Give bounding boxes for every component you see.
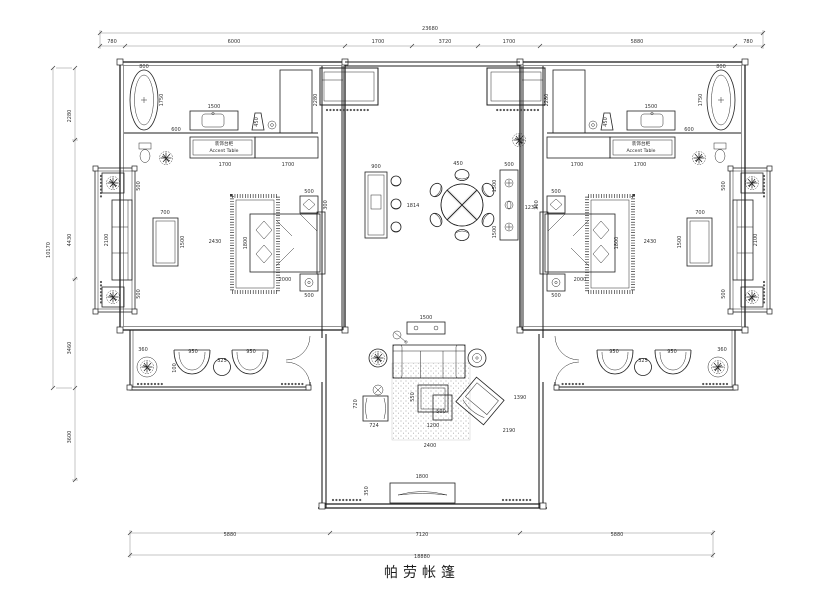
- bench: [363, 396, 388, 421]
- dimension-lines: [51, 30, 765, 558]
- balcony-bench: [112, 200, 132, 280]
- dimension-label: 1700: [219, 162, 232, 168]
- dimension-label: 2000: [574, 277, 587, 283]
- dimension-ticks: [51, 31, 765, 557]
- dimension-label: 500: [304, 293, 314, 299]
- dimension-label: 1700: [571, 162, 584, 168]
- dimension-label: 800: [139, 64, 149, 70]
- hall-console: [500, 170, 518, 240]
- dimension-label: 3460: [67, 342, 73, 355]
- balcony-planter-bottom: [102, 287, 124, 307]
- closet: [320, 68, 378, 105]
- dimension-label: 1234: [525, 205, 538, 211]
- dimension-label: 1500: [180, 236, 186, 249]
- dimension-label: 500: [551, 189, 561, 195]
- living-room: [318, 322, 547, 509]
- dimension-label: 950: [188, 349, 198, 355]
- dimension-label: 950: [667, 349, 677, 355]
- bar-stools: [391, 176, 401, 232]
- dimension-label: 1500: [492, 226, 498, 239]
- console-table: [407, 322, 445, 334]
- dimension-label: 2000: [279, 277, 292, 283]
- dimension-label: 10170: [46, 242, 52, 258]
- floorplan-sheet: 2368078060001700372017005880780588071205…: [0, 0, 837, 592]
- dimension-label: 500: [304, 189, 314, 195]
- radiator: [255, 137, 318, 158]
- dimension-label: 2280: [313, 94, 319, 107]
- dimension-label: 18880: [414, 554, 430, 560]
- dimension-label: 2100: [104, 234, 110, 247]
- dimension-label: 1814: [407, 203, 420, 209]
- dimension-label: 1500: [677, 236, 683, 249]
- dimension-label: 325: [217, 358, 227, 364]
- dimension-label: 1750: [698, 94, 704, 107]
- dimension-label: 500: [436, 409, 446, 415]
- dimension-label: 1500: [420, 315, 433, 321]
- dimension-label: 7120: [416, 532, 429, 538]
- dimension-label: 450: [453, 161, 463, 167]
- dimension-label: 2430: [209, 239, 222, 245]
- bathtub: [130, 70, 158, 130]
- dimension-label: 780: [107, 39, 117, 45]
- dimension-label: 350: [364, 486, 370, 496]
- dimension-label: 500: [551, 293, 561, 299]
- floor-drain: [268, 121, 276, 129]
- dimension-label: 2280: [544, 94, 550, 107]
- dimension-label: 1200: [427, 423, 440, 429]
- dimension-label: 550: [410, 392, 416, 402]
- dimension-label: 5880: [631, 39, 644, 45]
- dimension-label: 1500: [208, 104, 221, 110]
- vanity-counter: [190, 111, 238, 130]
- dimension-label: 1700: [634, 162, 647, 168]
- shower-area: [280, 70, 312, 133]
- nightstand-bottom: [300, 274, 318, 291]
- accent-table: [190, 137, 255, 158]
- dimension-label: 450: [603, 117, 609, 127]
- floorplan-canvas: 2368078060001700372017005880780588071205…: [0, 0, 837, 592]
- dimension-label: 1500: [492, 180, 498, 193]
- drawing-title: 帕劳帐篷: [384, 565, 460, 581]
- dimension-label: 2430: [644, 239, 657, 245]
- dimension-label: 500: [504, 162, 514, 168]
- dimension-label: 1700: [503, 39, 516, 45]
- annotation-layer: 2368078060001700372017005880780588071205…: [46, 26, 759, 560]
- dimension-label: 360: [717, 347, 727, 353]
- dimension-label: 450: [254, 117, 260, 127]
- balcony: [93, 166, 137, 314]
- dimension-label: 3600: [67, 431, 73, 444]
- dimension-label: 1500: [645, 104, 658, 110]
- central-hall: [345, 62, 526, 241]
- dimension-label: 3720: [439, 39, 452, 45]
- dimension-label: 1750: [159, 94, 165, 107]
- tv-console: [390, 483, 455, 503]
- dimension-label: 1800: [416, 474, 429, 480]
- dimension-label: 325: [638, 358, 648, 364]
- dimension-label: 23680: [422, 26, 438, 32]
- dimension-label: 6000: [228, 39, 241, 45]
- dimension-label: 600: [171, 127, 181, 133]
- dining-table: [441, 184, 483, 226]
- dimension-label: 724: [369, 423, 379, 429]
- dimension-label: 2190: [503, 428, 516, 434]
- dimension-label: 2100: [753, 234, 759, 247]
- dimension-label: 700: [160, 210, 170, 216]
- accent-table-label-en-left: Accent Table: [210, 148, 239, 154]
- dimension-label: 500: [136, 181, 142, 191]
- dimension-label: 720: [353, 399, 359, 409]
- dimension-label: 900: [371, 164, 381, 170]
- dimension-label: 1700: [372, 39, 385, 45]
- sofa-side-table-right: [468, 349, 486, 367]
- right-wing: [487, 59, 772, 390]
- lattice-screen: [322, 66, 343, 330]
- dimension-label: 700: [695, 210, 705, 216]
- stool-round: [373, 385, 383, 395]
- dimension-label: 950: [609, 349, 619, 355]
- bar-counter: [365, 172, 387, 238]
- dimension-label: 800: [716, 64, 726, 70]
- dimension-label: 1800: [614, 237, 620, 250]
- floor-lamp: [393, 331, 407, 343]
- dimension-label: 360: [138, 347, 148, 353]
- accent-table-label-en-right: Accent Table: [627, 148, 656, 154]
- dimension-label: 500: [721, 289, 727, 299]
- dimension-label: 300: [323, 200, 329, 210]
- left-wing: [93, 59, 378, 390]
- dimension-label: 4430: [67, 234, 73, 247]
- nightstand-top: [300, 196, 318, 213]
- side-table: [153, 218, 178, 266]
- dimension-label: 2400: [424, 443, 437, 449]
- dimension-label: 5880: [224, 532, 237, 538]
- dimension-label: 500: [136, 289, 142, 299]
- toilet: [139, 143, 151, 163]
- balcony-planter-top: [102, 173, 124, 193]
- dimension-label: 1390: [514, 395, 527, 401]
- dimension-label: 780: [743, 39, 753, 45]
- dimension-label: 1700: [282, 162, 295, 168]
- terrace-door-swing: [286, 336, 310, 386]
- dimension-label: 950: [246, 349, 256, 355]
- dimension-label: 500: [721, 181, 727, 191]
- dimension-label: 2280: [67, 110, 73, 123]
- dimension-label: 5880: [611, 532, 624, 538]
- dimension-label: 1800: [243, 237, 249, 250]
- accent-table-label-cn-right: 装饰台柜: [632, 140, 651, 147]
- sofa-side-table-left: [369, 349, 387, 367]
- dimension-label: 600: [684, 127, 694, 133]
- accent-table-label-cn-left: 装饰台柜: [215, 140, 234, 147]
- dimension-label: 100: [172, 363, 178, 373]
